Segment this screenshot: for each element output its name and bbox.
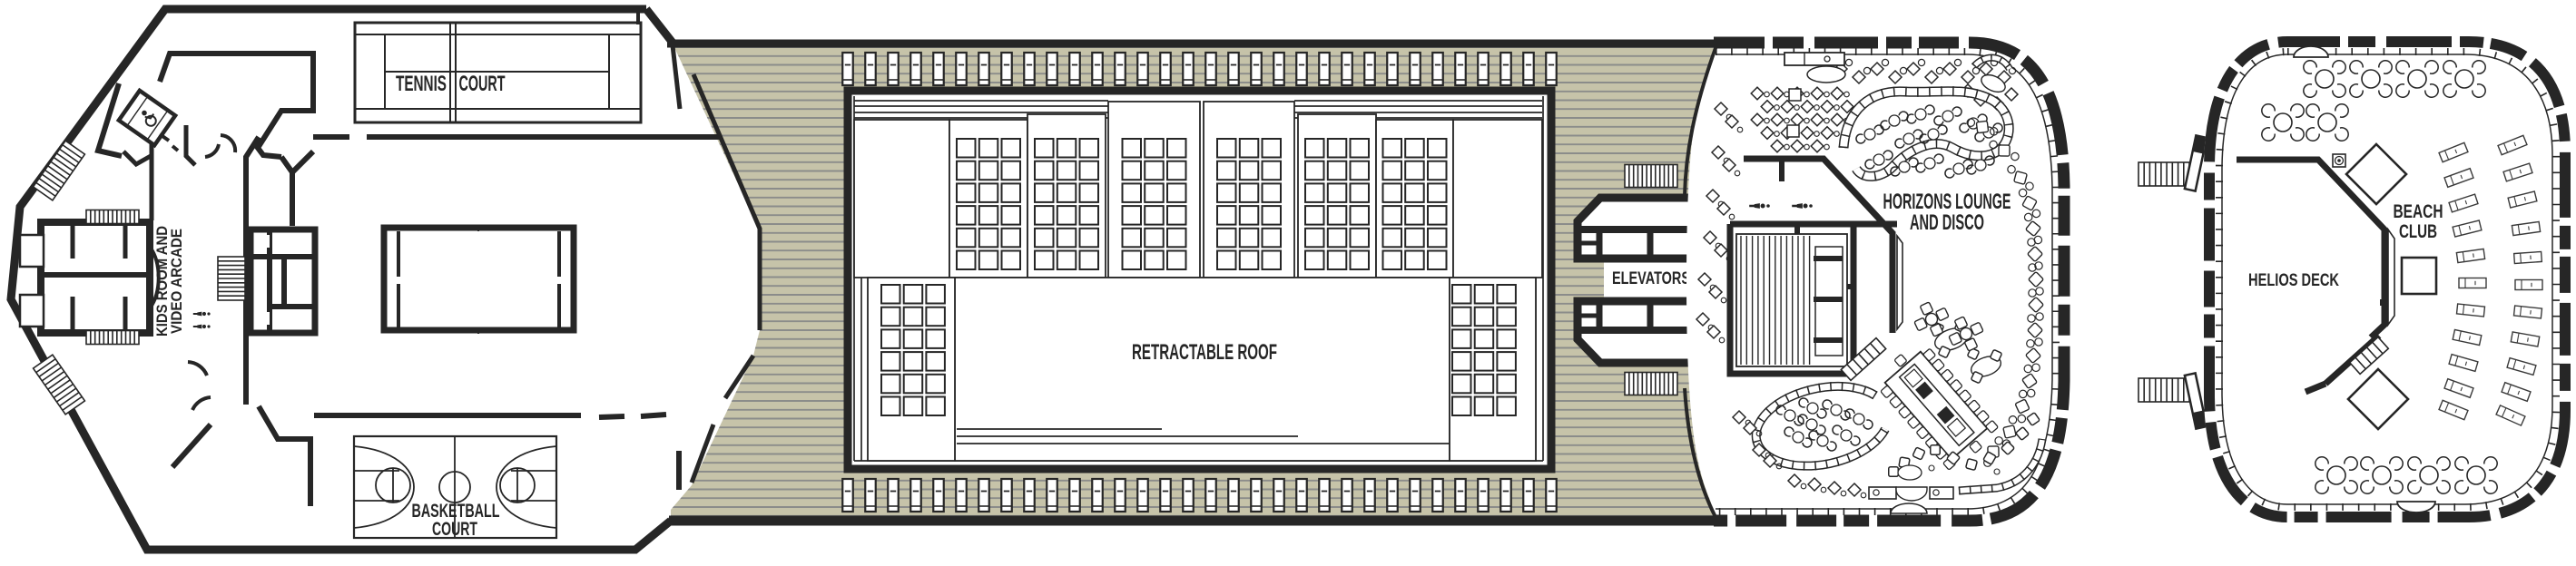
svg-text:ELEVATORS: ELEVATORS [1612, 269, 1690, 288]
svg-text:CLUB: CLUB [2399, 221, 2437, 242]
svg-text:TENNIS: TENNIS [396, 72, 447, 96]
svg-text:AND DISCO: AND DISCO [1910, 210, 1984, 235]
svg-text:COURT: COURT [459, 72, 506, 96]
svg-text:COURT: COURT [432, 519, 477, 540]
svg-text:VIDEO ARCADE: VIDEO ARCADE [168, 229, 185, 334]
svg-text:RETRACTABLE ROOF: RETRACTABLE ROOF [1132, 340, 1277, 365]
svg-text:BEACH: BEACH [2394, 201, 2443, 222]
svg-text:HELIOS DECK: HELIOS DECK [2248, 271, 2339, 290]
